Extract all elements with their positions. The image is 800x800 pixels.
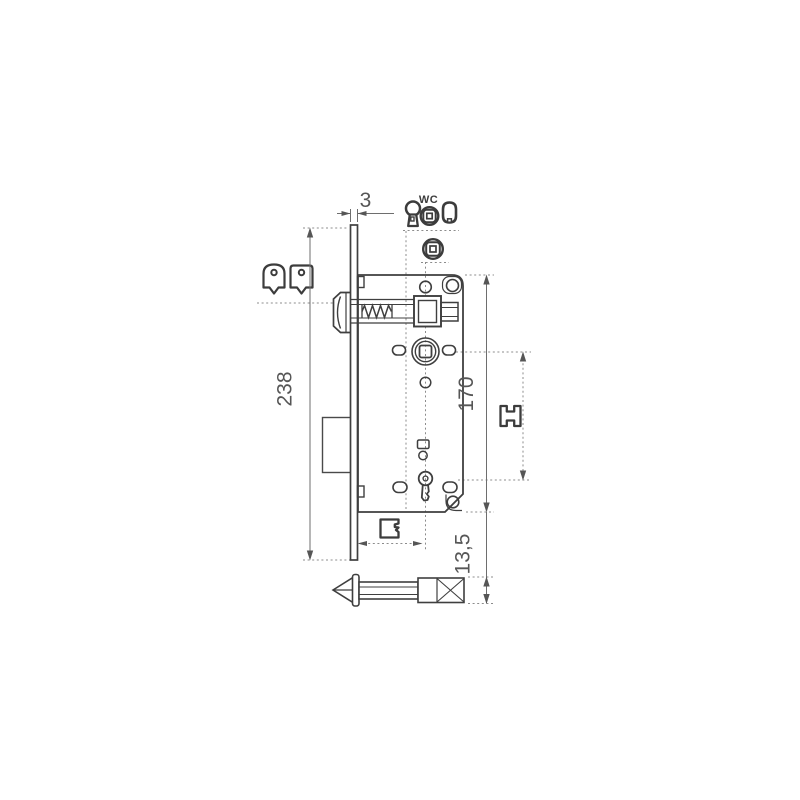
corner-hole-bottom-right [447,496,459,508]
dim-spindle-length: 13,5 [452,534,475,575]
latch-spring [362,306,392,318]
latch-profile-round-icon [264,265,285,294]
spindle-shaft [359,582,418,599]
deadbolt [323,418,352,473]
fixing-ovals [393,346,458,493]
wc-spindle [333,575,464,607]
faceplate [351,225,358,560]
wc-label: WC [419,194,438,206]
dimension-labels: 3 238 170 13,5 [274,189,479,574]
follower-knob-icon [423,239,443,259]
spindle-square-icon [501,406,521,426]
latch-profile-square-icon [291,266,313,294]
corner-hole-top-right [447,280,459,292]
dim-faceplate-thickness: 3 [360,189,372,212]
key-bit-icon [381,520,399,538]
wc-knob-icon: WC [419,194,438,225]
drawing-canvas: WC [0,0,800,800]
option-icons: WC [264,194,521,538]
dimension-lines [307,209,526,604]
lock-case-group [323,225,464,560]
latch-bolt [334,293,352,333]
dim-faceplate-height: 238 [274,371,297,406]
dim-case-height: 170 [455,376,478,411]
oval-cylinder-icon [443,203,456,223]
spindle-flange [353,575,360,607]
case-slot [418,440,430,449]
mortise-lock-technical-drawing: WC [0,0,800,800]
latch-mechanism [351,296,458,327]
key-cutout [419,472,433,501]
